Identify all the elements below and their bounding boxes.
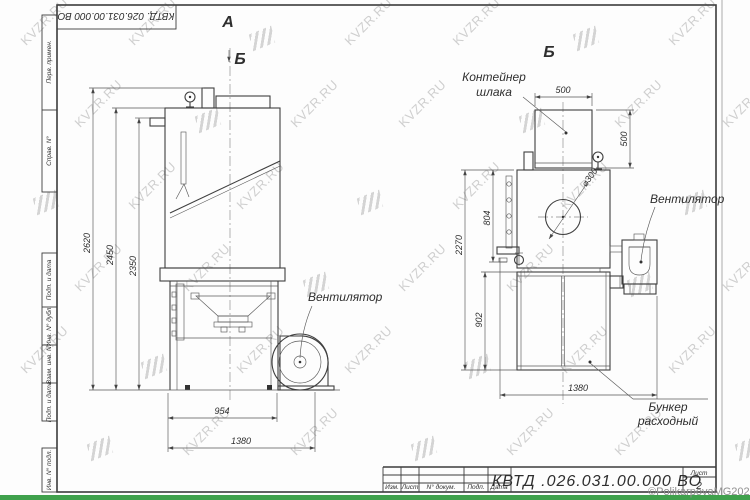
field-sprav-n: Справ. N° — [45, 136, 53, 166]
dim-954: 954 — [214, 406, 229, 416]
field-podp-data-1: Подп. и дата — [45, 259, 53, 300]
dim-804: 804 — [482, 210, 492, 225]
dim-1380-side: 1380 — [568, 383, 588, 393]
dim-902: 902 — [474, 312, 484, 327]
sheet-frame: Перв. примен. Справ. N° Подп. и дата Инв… — [42, 0, 722, 495]
front-view: А Б — [82, 14, 383, 452]
side-view-label: Б — [543, 44, 554, 61]
field-podp-data-2: Подп. и дата — [45, 381, 53, 422]
field-vzam-inv: Взам. инв. N° — [45, 343, 53, 384]
bunker-callout: Бункер расходный — [589, 361, 709, 429]
bunker — [517, 272, 610, 370]
front-view-label: А — [221, 14, 234, 31]
technical-drawing: Перв. примен. Справ. N° Подп. и дата Инв… — [0, 0, 750, 500]
dim-2270: 2270 — [454, 235, 464, 256]
col-izm: Изм. — [385, 484, 399, 491]
dim-2620: 2620 — [82, 233, 92, 254]
side-fan — [610, 234, 657, 294]
drawing-sheet: KVZR.RUKVZR.RUKVZR.RUKVZR.RUKVZR.RUKVZR.… — [0, 0, 750, 500]
copyright-watermark: ©PolikarpovaMG2021 — [648, 486, 750, 498]
front-fan — [272, 334, 334, 390]
front-fan-callout: Вентилятор — [300, 290, 383, 358]
container-callout: Контейнер шлака — [462, 70, 567, 135]
field-perv-primen: Перв. примен. — [46, 40, 53, 83]
furnace-body — [150, 108, 285, 281]
dim-500-height: 500 — [619, 131, 629, 146]
side-body: ⌀300 — [497, 166, 610, 272]
dim-2350: 2350 — [128, 256, 138, 277]
top-designation-text: КВТД. 026.031.00.000 ВО — [57, 10, 174, 21]
col-n-dokum: N° докум. — [427, 483, 456, 491]
side-fan-callout: Вентилятор — [640, 192, 725, 264]
slag-container — [524, 110, 603, 170]
dim-1380-front: 1380 — [231, 436, 251, 446]
side-fan-label: Вентилятор — [650, 192, 725, 206]
side-dimensions: 500 500 804 2270 902 1380 — [454, 85, 657, 399]
sheet-label: Лист — [690, 470, 708, 477]
side-view: Б Контейнер шлака — [454, 44, 725, 428]
field-inv-dubl: Инв. N° дубл. — [45, 306, 53, 346]
top-designation-box: КВТД. 026.031.00.000 ВО — [57, 5, 176, 29]
margin-field-strip: Перв. примен. Справ. N° Подп. и дата Инв… — [42, 15, 57, 492]
bottom-edge-bar — [0, 495, 750, 500]
container-label-line2: шлака — [476, 85, 512, 99]
col-list: Лист — [401, 484, 419, 491]
front-fan-label: Вентилятор — [308, 290, 383, 304]
dim-500-width: 500 — [555, 85, 570, 95]
col-podp: Подп. — [467, 483, 484, 491]
chimney — [185, 88, 270, 108]
container-label-line1: Контейнер — [462, 70, 526, 84]
front-section-mark: Б — [234, 51, 245, 68]
bunker-label-line1: Бункер — [648, 400, 687, 414]
dim-2450: 2450 — [105, 245, 115, 266]
bunker-label-line2: расходный — [637, 414, 699, 428]
field-inv-podl: Инв. N° подл. — [45, 450, 53, 491]
